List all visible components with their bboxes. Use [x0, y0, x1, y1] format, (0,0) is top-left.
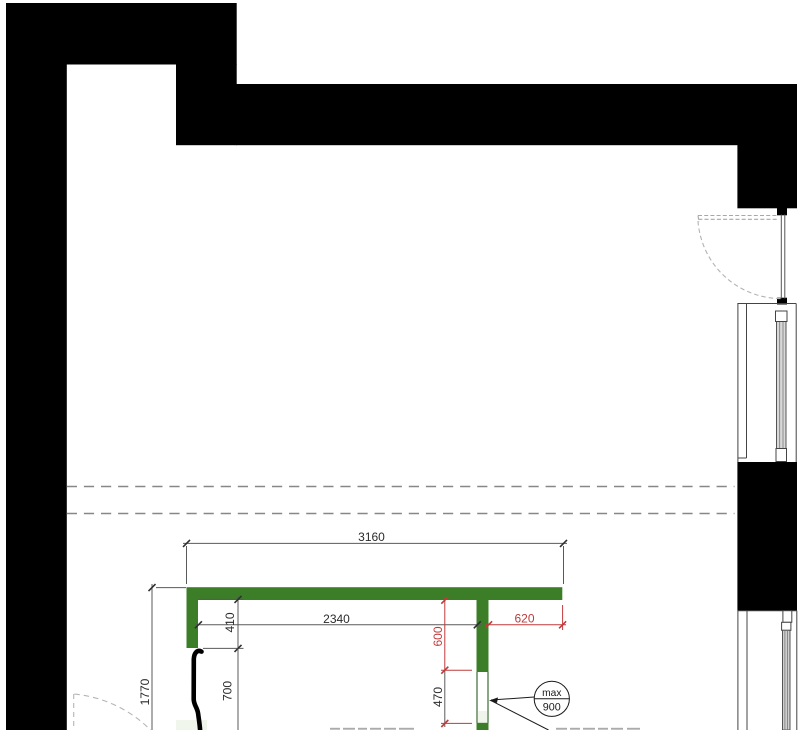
svg-text:470: 470	[431, 687, 445, 707]
svg-text:700: 700	[221, 681, 235, 701]
svg-text:410: 410	[223, 612, 237, 632]
svg-text:2340: 2340	[323, 612, 350, 626]
svg-text:600: 600	[431, 626, 445, 646]
svg-text:1770: 1770	[138, 678, 152, 705]
svg-text:max: max	[542, 688, 561, 699]
svg-text:620: 620	[514, 612, 534, 626]
svg-text:900: 900	[543, 702, 561, 714]
svg-text:3160: 3160	[358, 530, 385, 544]
